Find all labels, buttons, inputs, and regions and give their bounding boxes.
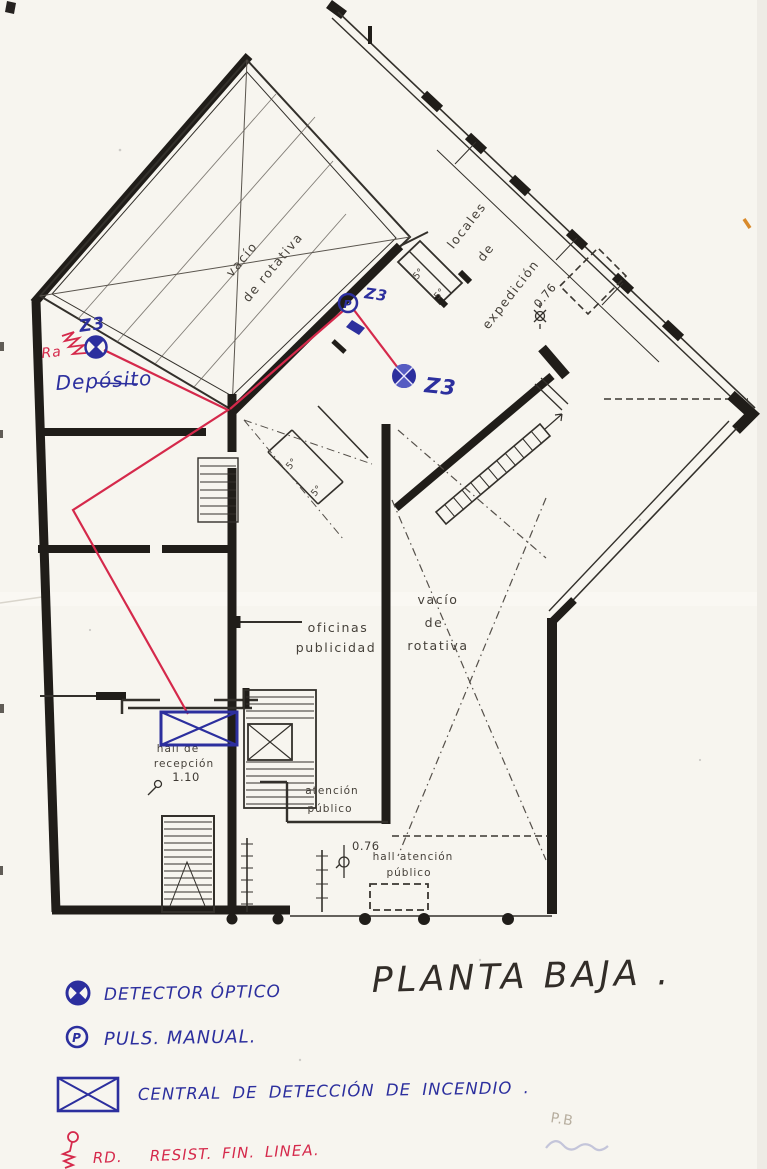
legend-eol-label: RESIST. FIN. LINEA. bbox=[150, 1141, 320, 1165]
legend-eol-prefix: RD. bbox=[93, 1148, 123, 1167]
legend-pulsador-label: PULS. MANUAL. bbox=[104, 1026, 257, 1050]
scan-blot bbox=[5, 1, 16, 14]
elevator-cross bbox=[248, 724, 292, 760]
railing-1 bbox=[241, 838, 253, 912]
fire-central-symbol-plan bbox=[161, 712, 237, 745]
edge-specks bbox=[0, 342, 4, 875]
topright-boundary-inner bbox=[332, 18, 749, 414]
radiating-dashes bbox=[244, 420, 372, 540]
manual-call-point-letter: P bbox=[343, 298, 352, 311]
door-tick bbox=[333, 341, 345, 352]
columns bbox=[227, 913, 515, 925]
zone-label-2: Z3 bbox=[362, 284, 389, 305]
label-atencion-1: atención bbox=[305, 785, 358, 797]
left-outer-wall bbox=[36, 301, 56, 912]
hall-bottom-diagonal-wall bbox=[232, 246, 400, 412]
optical-detector-symbol-2 bbox=[392, 364, 416, 388]
label-locales-2: de bbox=[474, 240, 497, 264]
label-room5-3: 5° bbox=[284, 457, 299, 472]
optical-detector-symbol-deposito bbox=[86, 337, 107, 358]
locales-partitions bbox=[455, 142, 623, 305]
zone-label-1: Z3 bbox=[77, 314, 107, 338]
stair-arrow bbox=[545, 414, 562, 429]
label-hallrecep-dim: 1.10 bbox=[172, 770, 200, 784]
railing-2 bbox=[316, 850, 328, 912]
legend-central-symbol bbox=[58, 1078, 118, 1111]
label-rotativa-top-1: vacío bbox=[223, 239, 261, 280]
stair-top-line2 bbox=[535, 384, 562, 410]
small-room-block-2 bbox=[460, 272, 470, 282]
stair-top-block bbox=[542, 348, 566, 376]
label-rotativa-c-3: rotativa bbox=[407, 638, 468, 653]
right-corner-wall bbox=[731, 395, 752, 430]
bottomleft-stairs bbox=[162, 816, 214, 912]
label-atencion-2: público bbox=[307, 803, 352, 815]
legend-eol-resistor-symbol bbox=[63, 1132, 78, 1168]
label-oficinas-2: publicidad bbox=[296, 640, 377, 655]
label-locales-3: expedición bbox=[479, 257, 542, 332]
red-wire-main bbox=[73, 350, 228, 714]
legend-pulsador-symbol: P bbox=[67, 1027, 87, 1047]
legend: DETECTOR ÓPTICO P PULS. MANUAL. CENTRAL … bbox=[58, 980, 530, 1168]
diagonal-stair bbox=[396, 348, 568, 524]
label-rotativa-c-1: vacío bbox=[417, 592, 458, 607]
lowerright-diagonal-outer bbox=[556, 428, 737, 618]
deposito-label: Depósito bbox=[55, 366, 153, 395]
label-hallrecep-2: recepción bbox=[154, 758, 214, 770]
lowerright-diagonal-inner bbox=[549, 421, 729, 611]
deposito-strike bbox=[96, 383, 138, 384]
label-hall-atencion-1: hall atención bbox=[373, 851, 454, 863]
floor-plan-drawing: vacío de rotativa locales de expedición … bbox=[0, 0, 767, 1169]
label-hall-atencion-2: público bbox=[386, 867, 431, 879]
legend-detector-symbol bbox=[67, 982, 89, 1004]
legend-central-label: CENTRAL DE DETECCIÓN DE INCENDIO . bbox=[138, 1078, 530, 1104]
red-wire-to-detector2 bbox=[354, 310, 398, 368]
red-ra-note: Ra bbox=[41, 344, 63, 362]
legend-pulsador-letter: P bbox=[72, 1031, 82, 1045]
dashed-desk bbox=[370, 884, 428, 910]
pencil-note: P.B bbox=[549, 1110, 575, 1129]
locales-inner-line bbox=[437, 150, 659, 362]
orange-speck bbox=[744, 219, 750, 228]
label-rotativa-c-2: de bbox=[425, 615, 444, 630]
top-corner-block bbox=[329, 4, 344, 15]
label-dim-expedicion: 0.76 bbox=[531, 280, 559, 310]
stair-top-line1 bbox=[541, 378, 568, 404]
stair-treads bbox=[436, 424, 550, 524]
legend-detector-label: DETECTOR ÓPTICO bbox=[104, 980, 281, 1005]
stair-side-wall bbox=[396, 376, 552, 508]
edge-shadow bbox=[757, 0, 767, 1169]
blue-annotations: Z3 Depósito P Z3 Z3 bbox=[55, 284, 458, 745]
red-wire-to-junction bbox=[230, 310, 344, 409]
door-flag bbox=[148, 781, 162, 796]
label-room5-1: 5° bbox=[411, 267, 426, 282]
dim-symbol-bottom bbox=[336, 845, 349, 878]
label-oficinas-1: oficinas bbox=[308, 620, 369, 635]
scanned-floor-plan-page: vacío de rotativa locales de expedición … bbox=[0, 0, 767, 1169]
pencil-scribble bbox=[546, 1141, 608, 1150]
hall-inner-outline bbox=[52, 72, 396, 396]
hall-diagonal-2 bbox=[232, 60, 247, 410]
page-title: PLANTA BAJA . bbox=[371, 953, 672, 1001]
zone-label-3: Z3 bbox=[422, 373, 457, 400]
